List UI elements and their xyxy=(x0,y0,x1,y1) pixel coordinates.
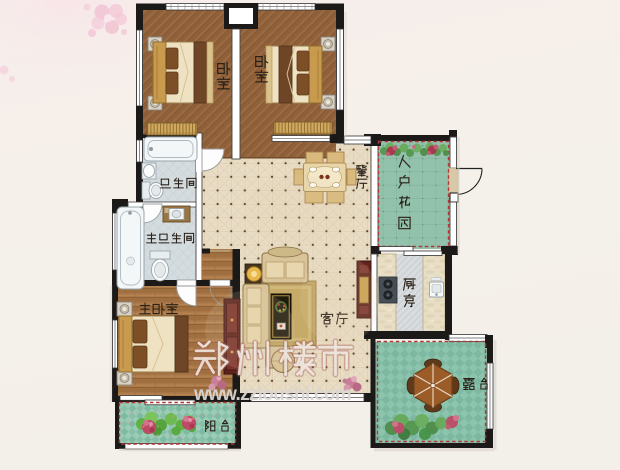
svg-text:www.zzloushi.com: www.zzloushi.com xyxy=(193,384,351,405)
